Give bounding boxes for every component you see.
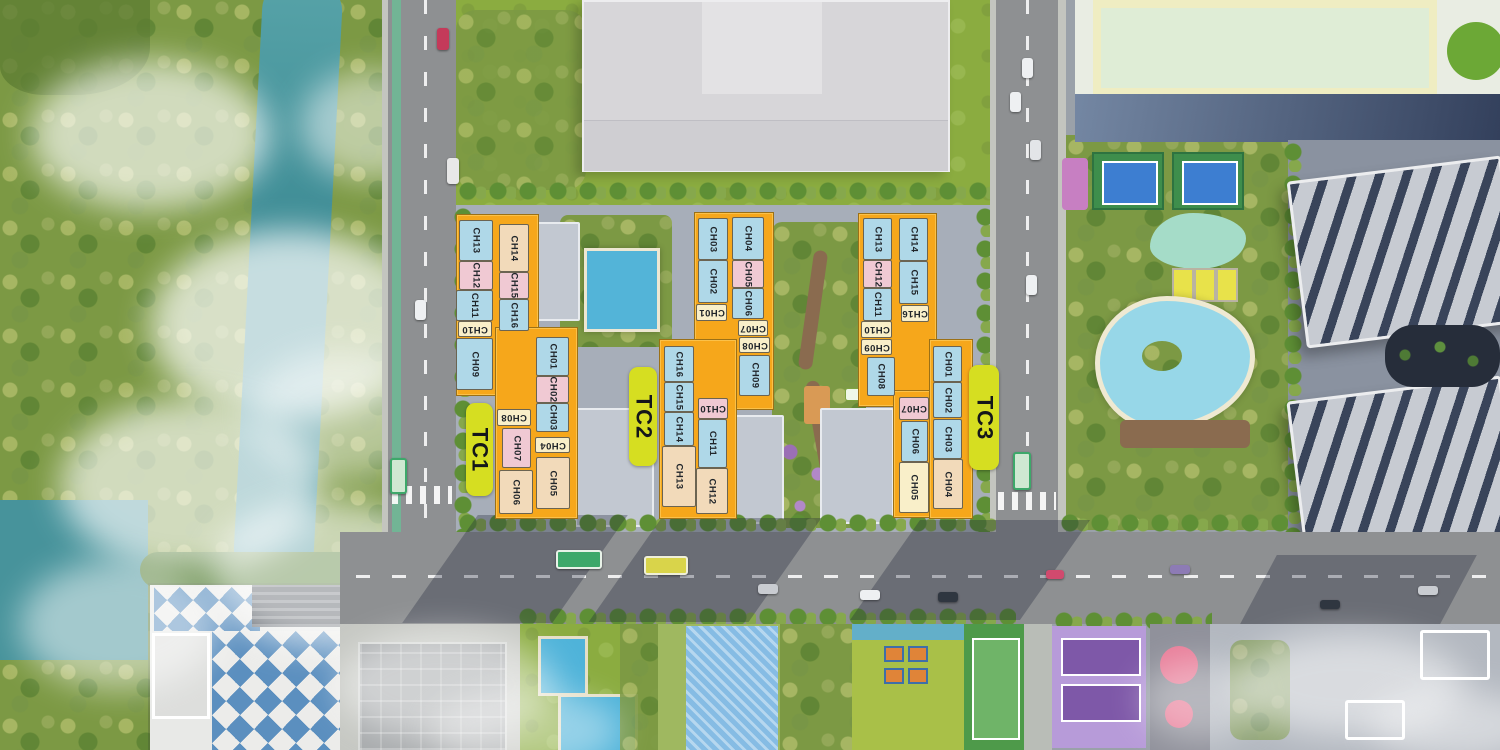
unit-tc3-ch08[interactable]: CH08 bbox=[867, 357, 895, 396]
unit-label: CH06 bbox=[909, 429, 920, 455]
unit-label: CH15 bbox=[508, 273, 519, 299]
unit-label: CH14 bbox=[673, 416, 684, 442]
unit-tc3-ch10[interactable]: CH10 bbox=[861, 321, 892, 338]
unit-label: CH11 bbox=[707, 431, 718, 456]
unit-label: CH05 bbox=[742, 261, 753, 287]
unit-label: CH02 bbox=[942, 387, 953, 413]
unit-label: CH06 bbox=[742, 291, 753, 317]
unit-tc2-ch06[interactable]: CH06 bbox=[732, 288, 764, 319]
unit-label: CH01 bbox=[942, 351, 953, 377]
unit-tc3-ch16[interactable]: CH16 bbox=[901, 305, 929, 322]
unit-tc1-ch03[interactable]: CH03 bbox=[536, 403, 569, 432]
unit-tc3-ch15[interactable]: CH15 bbox=[899, 261, 928, 304]
unit-tc1-ch01[interactable]: CH01 bbox=[536, 337, 569, 376]
unit-tc2-ch01[interactable]: CH01 bbox=[696, 304, 727, 321]
unit-label: CH03 bbox=[547, 405, 558, 431]
unit-label: CH06 bbox=[510, 479, 521, 505]
unit-tc1-ch11[interactable]: CH11 bbox=[456, 290, 493, 321]
unit-label: CH09 bbox=[469, 351, 480, 377]
unit-tc2-ch08[interactable]: CH08 bbox=[739, 337, 770, 353]
unit-tc3-ch07[interactable]: CH07 bbox=[899, 397, 929, 420]
unit-tc3-ch06[interactable]: CH06 bbox=[901, 421, 928, 462]
unit-tc3-ch01[interactable]: CH01 bbox=[933, 346, 962, 382]
towers-overlay-layer: CH13CH12CH11CH10CH09CH14CH15CH16CH01CH02… bbox=[0, 0, 1500, 750]
unit-label: CH16 bbox=[902, 308, 928, 319]
unit-tc2-ch15[interactable]: CH15 bbox=[664, 382, 694, 412]
unit-tc3-ch02[interactable]: CH02 bbox=[933, 382, 962, 418]
unit-label: CH09 bbox=[749, 363, 760, 389]
unit-label: CH02 bbox=[547, 377, 558, 403]
unit-tc1-ch06[interactable]: CH06 bbox=[499, 470, 533, 514]
unit-tc3-ch12[interactable]: CH12 bbox=[863, 260, 892, 288]
unit-label: CH15 bbox=[908, 270, 919, 296]
unit-tc2-ch10[interactable]: CH10 bbox=[698, 398, 728, 419]
unit-label: CH14 bbox=[508, 235, 519, 261]
unit-label: CH12 bbox=[872, 261, 883, 287]
unit-label: CH03 bbox=[942, 426, 953, 452]
unit-tc2-ch16[interactable]: CH16 bbox=[664, 346, 694, 382]
unit-label: CH04 bbox=[742, 226, 753, 252]
unit-label: CH01 bbox=[699, 307, 725, 318]
tower-label-text: TC1 bbox=[467, 427, 493, 472]
tower-label-text: TC3 bbox=[971, 395, 997, 440]
unit-tc3-ch03[interactable]: CH03 bbox=[933, 419, 962, 459]
unit-tc2-ch05[interactable]: CH05 bbox=[732, 260, 764, 288]
unit-label: CH15 bbox=[673, 384, 684, 410]
unit-tc1-ch14[interactable]: CH14 bbox=[499, 224, 529, 272]
unit-tc2-ch02[interactable]: CH02 bbox=[698, 260, 728, 303]
unit-tc2-ch09[interactable]: CH09 bbox=[739, 355, 770, 396]
unit-tc2-ch11[interactable]: CH11 bbox=[698, 419, 727, 468]
unit-label: CH11 bbox=[469, 293, 480, 318]
unit-tc1-ch15[interactable]: CH15 bbox=[499, 272, 529, 299]
unit-tc1-ch04[interactable]: CH04 bbox=[535, 437, 570, 453]
unit-tc3-ch13[interactable]: CH13 bbox=[863, 218, 892, 260]
unit-tc1-ch13[interactable]: CH13 bbox=[459, 220, 493, 261]
unit-tc2-ch12[interactable]: CH12 bbox=[696, 468, 728, 514]
unit-tc1-ch07[interactable]: CH07 bbox=[502, 428, 531, 468]
unit-label: CH08 bbox=[875, 364, 886, 390]
unit-label: CH10 bbox=[462, 324, 488, 335]
unit-label: CH07 bbox=[740, 323, 766, 334]
unit-tc1-ch16[interactable]: CH16 bbox=[499, 299, 529, 331]
unit-tc2-ch03[interactable]: CH03 bbox=[698, 218, 728, 260]
unit-label: CH07 bbox=[901, 403, 927, 414]
unit-label: CH01 bbox=[547, 344, 558, 370]
unit-label: CH07 bbox=[511, 435, 522, 461]
masterplan-aerial-view: CH13CH12CH11CH10CH09CH14CH15CH16CH01CH02… bbox=[0, 0, 1500, 750]
unit-label: CH08 bbox=[742, 340, 768, 351]
unit-tc3-ch04[interactable]: CH04 bbox=[933, 459, 963, 509]
unit-label: CH12 bbox=[706, 478, 717, 504]
unit-label: CH04 bbox=[942, 471, 953, 497]
unit-tc1-ch10[interactable]: CH10 bbox=[458, 321, 492, 337]
unit-tc3-ch11[interactable]: CH11 bbox=[863, 288, 892, 321]
unit-label: CH12 bbox=[470, 263, 481, 289]
unit-label: CH04 bbox=[540, 440, 566, 451]
unit-tc3-ch09[interactable]: CH09 bbox=[861, 339, 892, 355]
unit-tc2-ch07[interactable]: CH07 bbox=[738, 320, 768, 336]
unit-tc1-ch09[interactable]: CH09 bbox=[456, 338, 493, 390]
unit-label: CH13 bbox=[673, 464, 684, 490]
unit-label: CH08 bbox=[501, 412, 527, 423]
unit-label: CH05 bbox=[547, 470, 558, 496]
unit-label: CH09 bbox=[864, 342, 890, 353]
unit-label: CH16 bbox=[508, 302, 519, 328]
unit-label: CH11 bbox=[872, 292, 883, 317]
unit-label: CH10 bbox=[864, 324, 890, 335]
unit-label: CH14 bbox=[908, 227, 919, 253]
unit-tc1-ch08[interactable]: CH08 bbox=[497, 409, 531, 426]
unit-tc2-ch13[interactable]: CH13 bbox=[662, 446, 696, 507]
unit-tc1-ch05[interactable]: CH05 bbox=[536, 457, 570, 509]
unit-label: CH05 bbox=[908, 475, 919, 501]
unit-tc2-ch14[interactable]: CH14 bbox=[664, 412, 694, 446]
tower-label-text: TC2 bbox=[630, 394, 656, 439]
unit-tc1-ch12[interactable]: CH12 bbox=[459, 261, 493, 290]
unit-label: CH02 bbox=[707, 269, 718, 295]
tower-label-tc3[interactable]: TC3 bbox=[969, 365, 999, 470]
unit-tc3-ch14[interactable]: CH14 bbox=[899, 218, 928, 261]
tower-label-tc2[interactable]: TC2 bbox=[629, 367, 657, 466]
unit-tc1-ch02[interactable]: CH02 bbox=[536, 376, 569, 403]
unit-label: CH16 bbox=[673, 351, 684, 377]
unit-label: CH13 bbox=[470, 228, 481, 254]
unit-label: CH13 bbox=[872, 226, 883, 252]
tower-label-tc1[interactable]: TC1 bbox=[466, 403, 493, 496]
unit-label: CH10 bbox=[700, 403, 726, 414]
unit-tc2-ch04[interactable]: CH04 bbox=[732, 217, 764, 260]
unit-label: CH03 bbox=[707, 226, 718, 252]
unit-tc3-ch05[interactable]: CH05 bbox=[899, 462, 929, 513]
